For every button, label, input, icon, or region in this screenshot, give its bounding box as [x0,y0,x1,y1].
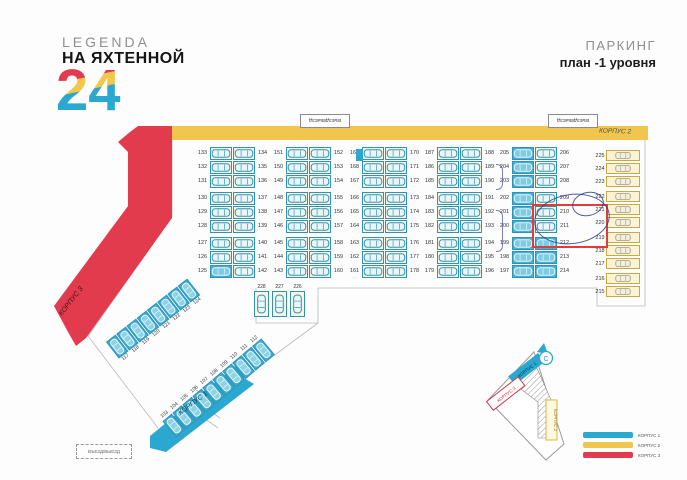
car-icon [608,177,638,186]
car-icon [211,148,231,159]
car-icon [211,207,231,218]
car-icon [386,162,406,173]
parking-space-214 [535,265,557,278]
space-number: 134 [256,151,269,157]
parking-space-222 [606,191,640,202]
car-icon [363,148,383,159]
parking-space-149 [286,175,308,188]
car-icon [608,192,638,201]
parking-space-185 [437,175,459,188]
space-number: 189 [483,165,496,171]
car-icon [310,266,330,277]
car-icon [536,252,556,263]
parking-space-170 [385,147,407,160]
parking-space-225 [606,150,640,161]
pen-bracket-annotation [496,164,503,190]
car-icon [287,221,307,232]
space-number: 191 [483,196,496,202]
car-icon [310,252,330,263]
car-icon [513,238,533,249]
space-number: 137 [256,196,269,202]
space-number: 213 [558,255,571,261]
car-icon [438,238,458,249]
car-icon [211,238,231,249]
legend-row: КОРПУС 2 [583,442,660,448]
parking-space-127 [210,237,232,250]
parking-space-140 [233,237,255,250]
parking-space-154 [309,175,331,188]
space-number: 151 [272,151,285,157]
car-icon [438,148,458,159]
space-number: 185 [423,179,436,185]
car-icon [287,193,307,204]
space-number: 226 [293,284,301,290]
parking-space-178 [385,265,407,278]
car-icon [608,218,638,227]
space-number: 228 [257,284,265,290]
parking-space-145 [286,237,308,250]
parking-bottom-row: 228227226 [254,284,305,317]
parking-group-4: 1871881861891851901841911831921821931811… [423,147,496,279]
parking-space-197 [512,265,534,278]
parking-space-136 [233,175,255,188]
car-icon [234,148,254,159]
minimap-korpus2-label: КОРПУС 2 [553,409,558,432]
car-icon [234,238,254,249]
parking-space-203 [512,175,534,188]
car-icon [287,207,307,218]
car-icon [287,252,307,263]
space-number: 174 [408,210,421,216]
space-number: 223 [594,179,606,185]
parking-space-182 [437,220,459,233]
parking-space-194 [460,237,482,250]
car-icon [608,233,638,242]
car-icon [287,266,307,277]
car-icon [287,162,307,173]
parking-space-164 [362,220,384,233]
legend-row: КОРПУС 3 [583,452,660,458]
parking-space-139 [233,220,255,233]
parking-space-187 [437,147,459,160]
space-number: 152 [332,151,345,157]
parking-space-189 [460,161,482,174]
parking-space-162 [362,251,384,264]
car-icon [608,274,638,283]
space-number: 153 [332,165,345,171]
car-icon [461,221,481,232]
space-number: 131 [196,179,209,185]
space-number: 142 [256,269,269,275]
parking-space-191 [460,192,482,205]
space-number: 182 [423,224,436,230]
parking-group-1: 1331341321351311361301371291381281391271… [196,147,269,279]
car-icon [513,162,533,173]
legend-label: КОРПУС 1 [638,433,660,438]
parking-space-172 [385,175,407,188]
parking-space-216 [606,273,640,284]
car-icon [363,207,383,218]
parking-space-198 [512,251,534,264]
space-number: 156 [332,210,345,216]
space-number: 180 [423,255,436,261]
parking-space-179 [437,265,459,278]
space-number: 145 [272,241,285,247]
parking-space-181 [437,237,459,250]
car-icon [234,162,254,173]
parking-space-205 [512,147,534,160]
car-icon [461,176,481,187]
car-icon [287,176,307,187]
car-icon [363,176,383,187]
space-number: 171 [408,165,421,171]
space-number: 127 [196,241,209,247]
car-icon [513,176,533,187]
space-number: 161 [348,269,361,275]
space-number: 195 [483,255,496,261]
parking-space-126 [210,251,232,264]
car-icon [438,162,458,173]
car-icon [513,221,533,232]
parking-space-174 [385,206,407,219]
car-icon [234,193,254,204]
space-number: 136 [256,179,269,185]
space-number: 172 [408,179,421,185]
space-number: 193 [483,224,496,230]
legend-color-bar [583,452,633,458]
car-icon [513,252,533,263]
parking-space-137 [233,192,255,205]
car-icon [363,252,383,263]
car-icon [234,221,254,232]
car-icon [310,207,330,218]
parking-space-166 [362,192,384,205]
space-number: 217 [594,261,606,267]
car-icon [310,238,330,249]
space-number: 157 [332,224,345,230]
space-number: 224 [594,166,606,172]
parking-space-226 [290,291,305,317]
parking-space-152 [309,147,331,160]
parking-space-220 [606,217,640,228]
space-number: 155 [332,196,345,202]
car-icon [310,193,330,204]
car-icon [211,221,231,232]
space-number: 146 [272,224,285,230]
parking-space-163 [362,237,384,250]
car-icon [363,221,383,232]
car-icon [234,207,254,218]
parking-space-227 [272,291,287,317]
car-icon [234,266,254,277]
space-number: 216 [594,276,606,282]
parking-space-196 [460,265,482,278]
legend: КОРПУС 1КОРПУС 2КОРПУС 3 [583,432,660,462]
car-icon [438,207,458,218]
parking-space-188 [460,147,482,160]
space-number: 173 [408,196,421,202]
parking-space-151 [286,147,308,160]
car-icon [513,266,533,277]
parking-space-167 [362,175,384,188]
parking-space-213 [535,251,557,264]
car-icon [310,148,330,159]
space-number: 133 [196,151,209,157]
parking-space-168 [362,161,384,174]
car-icon [461,266,481,277]
space-number: 186 [423,165,436,171]
parking-space-217 [606,258,640,269]
space-number: 175 [408,224,421,230]
car-icon [386,252,406,263]
parking-space-153 [309,161,331,174]
space-number: 132 [196,165,209,171]
parking-space-134 [233,147,255,160]
car-icon [292,293,303,315]
parking-space-202 [512,192,534,205]
parking-space-125 [210,265,232,278]
space-number: 140 [256,241,269,247]
parking-space-193 [460,220,482,233]
space-number: 198 [498,255,511,261]
space-number: 176 [408,241,421,247]
car-icon [386,193,406,204]
parking-space-155 [309,192,331,205]
legend-row: КОРПУС 1 [583,432,660,438]
parking-space-142 [233,265,255,278]
car-icon [608,164,638,173]
car-icon [536,176,556,187]
car-icon [211,162,231,173]
parking-space-147 [286,206,308,219]
parking-space-148 [286,192,308,205]
parking-space-171 [385,161,407,174]
parking-space-184 [437,192,459,205]
car-icon [363,193,383,204]
car-icon [256,293,267,315]
legend-color-bar [583,442,633,448]
entrance-exit-bottom-label: ВЪЕЗД/ВЫЕЗД [76,444,132,459]
space-number: 144 [272,255,285,261]
car-icon [438,266,458,277]
space-number: 167 [348,179,361,185]
parking-space-221 [606,204,640,215]
space-number: 165 [348,210,361,216]
space-number: 141 [256,255,269,261]
car-icon [438,221,458,232]
space-number: 177 [408,255,421,261]
parking-group-2: 1511521501531491541481551471561461571451… [272,147,345,279]
space-number: 187 [423,151,436,157]
car-icon [438,193,458,204]
parking-space-146 [286,220,308,233]
car-icon [461,238,481,249]
space-number: 159 [332,255,345,261]
parking-group-3: 1691701681711671721661731651741641751631… [348,147,421,279]
space-number: 184 [423,196,436,202]
space-number: 194 [483,241,496,247]
parking-space-159 [309,251,331,264]
parking-space-204 [512,161,534,174]
space-number: 128 [196,224,209,230]
parking-space-228 [254,291,269,317]
car-icon [363,266,383,277]
space-number: 181 [423,241,436,247]
space-number: 202 [498,196,511,202]
car-icon [211,176,231,187]
space-number: 196 [483,269,496,275]
parking-space-165 [362,206,384,219]
parking-space-129 [210,206,232,219]
parking-space-175 [385,220,407,233]
car-icon [211,266,231,277]
parking-space-186 [437,161,459,174]
car-icon [211,252,231,263]
parking-space-160 [309,265,331,278]
car-icon [608,246,638,255]
space-number: 162 [348,255,361,261]
space-number: 214 [558,269,571,275]
car-icon [438,176,458,187]
car-icon [438,252,458,263]
parking-space-143 [286,265,308,278]
space-number: 208 [558,179,571,185]
space-number: 206 [558,151,571,157]
car-icon [386,238,406,249]
parking-space-192 [460,206,482,219]
reserved-space-marker [356,149,363,161]
legend-label: КОРПУС 3 [638,453,660,458]
parking-space-190 [460,175,482,188]
car-icon [461,162,481,173]
parking-space-200 [512,220,534,233]
parking-space-173 [385,192,407,205]
parking-space-158 [309,237,331,250]
parking-space-161 [362,265,384,278]
space-number: 183 [423,210,436,216]
legend-label: КОРПУС 2 [638,443,660,448]
parking-space-180 [437,251,459,264]
legend-color-bar [583,432,633,438]
car-icon [461,193,481,204]
parking-space-156 [309,206,331,219]
parking-space-224 [606,163,640,174]
space-number: 168 [348,165,361,171]
car-icon [287,238,307,249]
parking-space-132 [210,161,232,174]
parking-space-206 [535,147,557,160]
parking-space-183 [437,206,459,219]
space-number: 227 [275,284,283,290]
car-icon [386,221,406,232]
car-icon [608,151,638,160]
space-number: 166 [348,196,361,202]
space-number: 158 [332,241,345,247]
entrance-exit-label-2: ВЪЕЗД/ВЫЕЗД [548,114,598,128]
parking-space-131 [210,175,232,188]
parking-space-157 [309,220,331,233]
space-number: 130 [196,196,209,202]
space-number: 135 [256,165,269,171]
compass-north-label: С [543,356,548,363]
parking-space-141 [233,251,255,264]
car-icon [608,259,638,268]
car-icon [536,162,556,173]
space-number: 188 [483,151,496,157]
parking-space-138 [233,206,255,219]
parking-space-135 [233,161,255,174]
car-icon [211,193,231,204]
parking-plan-page: LEGENDA НА ЯХТЕННОЙ 24 ПАРКИНГ план -1 у… [0,0,687,480]
space-number: 192 [483,210,496,216]
car-icon [513,193,533,204]
space-number: 125 [196,269,209,275]
parking-space-223 [606,176,640,187]
car-icon [234,176,254,187]
space-number: 225 [594,153,606,159]
car-icon [608,205,638,214]
car-icon [363,162,383,173]
car-icon [310,221,330,232]
parking-space-177 [385,251,407,264]
car-icon [461,207,481,218]
parking-space-128 [210,220,232,233]
car-icon [513,148,533,159]
space-number: 150 [272,165,285,171]
space-number: 207 [558,165,571,171]
space-number: 163 [348,241,361,247]
space-number: 154 [332,179,345,185]
car-icon [310,176,330,187]
korpus2-band-label: КОРПУС 2 [599,127,631,135]
space-number: 129 [196,210,209,216]
parking-space-150 [286,161,308,174]
space-number: 149 [272,179,285,185]
car-icon [310,162,330,173]
parking-space-195 [460,251,482,264]
space-number: 205 [498,151,511,157]
car-icon [513,207,533,218]
entrance-exit-label-1: ВЪЕЗД/ВЫЕЗД [300,114,350,128]
space-number: 147 [272,210,285,216]
space-number: 179 [423,269,436,275]
space-number: 164 [348,224,361,230]
car-icon [608,287,638,296]
parking-space-176 [385,237,407,250]
parking-space-218 [606,245,640,256]
car-icon [386,148,406,159]
space-number: 178 [408,269,421,275]
car-icon [386,266,406,277]
parking-space-219 [606,232,640,243]
car-icon [287,148,307,159]
pen-bracket-annotation [496,210,503,252]
car-icon [274,293,285,315]
parking-space-199 [512,237,534,250]
parking-space-207 [535,161,557,174]
car-icon [461,252,481,263]
car-icon [363,238,383,249]
car-icon [536,266,556,277]
parking-space-144 [286,251,308,264]
space-number: 160 [332,269,345,275]
space-number: 139 [256,224,269,230]
parking-space-201 [512,206,534,219]
space-number: 197 [498,269,511,275]
car-icon [536,148,556,159]
space-number: 138 [256,210,269,216]
space-number: 148 [272,196,285,202]
